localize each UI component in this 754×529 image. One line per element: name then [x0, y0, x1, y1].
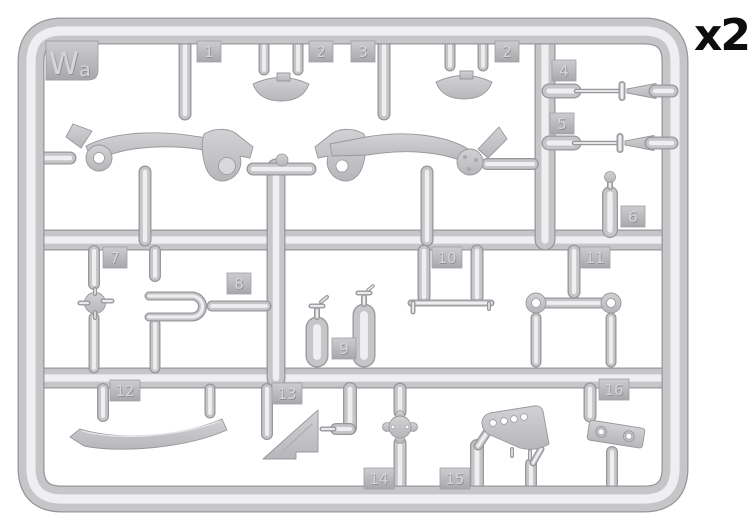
part-4-rod: [549, 84, 672, 99]
part-tab-2: 22: [495, 41, 519, 62]
part-tab-1: 11: [197, 41, 221, 62]
svg-text:6: 6: [628, 208, 638, 226]
part-12-blade: [70, 419, 227, 449]
part-2-dish: [436, 71, 492, 99]
svg-text:16: 16: [604, 381, 623, 399]
svg-text:a: a: [79, 59, 91, 81]
part-2-dish: [253, 73, 309, 101]
svg-text:7: 7: [110, 249, 120, 267]
svg-text:W: W: [49, 47, 79, 82]
svg-text:11: 11: [585, 249, 604, 267]
svg-text:1: 1: [204, 43, 214, 61]
part-tab-16: 1616: [599, 379, 629, 400]
part-tab-14: 1414: [364, 468, 394, 489]
part-6-cylinder: [605, 172, 616, 231]
part-tab-13: 1313: [272, 383, 302, 404]
part-tab-2: 22: [309, 41, 333, 62]
part-14-flange: [383, 411, 418, 444]
part-tab-8: 88: [227, 273, 251, 294]
part-tab-5: 55: [550, 113, 574, 134]
part-tab-10: 1010: [432, 247, 462, 268]
svg-text:5: 5: [557, 115, 567, 133]
svg-text:9: 9: [339, 340, 349, 358]
part-7-knuckle: [80, 289, 112, 318]
part-8-u-tube: [149, 296, 203, 317]
svg-text:12: 12: [115, 382, 134, 400]
svg-text:2: 2: [502, 43, 512, 61]
sprue-diagram-svg: WWaa112233224455667788991010111112121313…: [0, 0, 754, 529]
part-tab-11: 1111: [580, 247, 610, 268]
svg-text:13: 13: [277, 385, 296, 403]
part-tab-12: 1212: [110, 380, 140, 401]
svg-text:8: 8: [234, 275, 244, 293]
part-tab-6: 66: [621, 206, 645, 227]
svg-text:14: 14: [369, 470, 388, 488]
svg-text:15: 15: [445, 470, 464, 488]
part-tab-3: 33: [351, 41, 375, 62]
part-tab-15: 1515: [440, 468, 470, 489]
sprue-sheet: WWaa112233224455667788991010111112121313…: [0, 0, 754, 529]
svg-text:2: 2: [316, 43, 326, 61]
part-tab-4: 44: [552, 60, 576, 81]
sprue-runners: [31, 31, 675, 499]
part-16-plate: [587, 420, 645, 449]
part-tab-7: 77: [103, 247, 127, 268]
sprue-code-tab: WWaa: [46, 41, 98, 83]
part-tab-9: 99: [332, 338, 356, 359]
svg-text:4: 4: [559, 62, 569, 80]
svg-text:10: 10: [437, 249, 456, 267]
part-10-step: [411, 303, 491, 312]
quantity-label: x2: [694, 10, 749, 61]
part-5-rod: [549, 136, 672, 151]
svg-text:3: 3: [358, 43, 368, 61]
